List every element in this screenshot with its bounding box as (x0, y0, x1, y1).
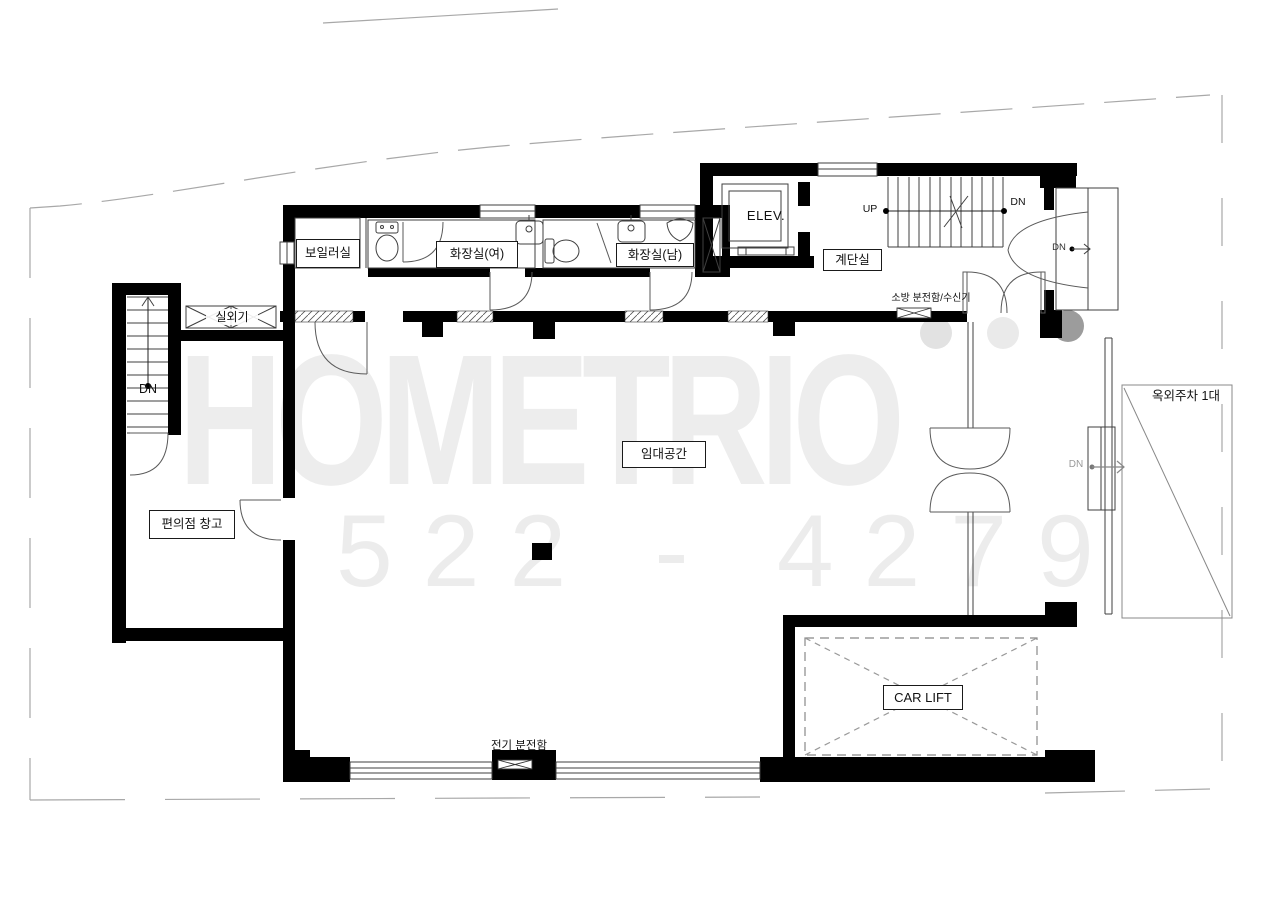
sink-women-icon (516, 221, 543, 244)
doors (130, 212, 1088, 540)
exit-arrow-entrance-icon (1070, 244, 1091, 254)
panels (498, 308, 931, 769)
label-toilet-women: 화장실(여) (436, 241, 518, 268)
label-dn-main-stairs: DN (1006, 196, 1030, 208)
label-rental-space: 임대공간 (622, 441, 706, 468)
label-outdoor-parking: 옥외주차 1대 (1141, 389, 1231, 404)
label-stairwell: 계단실 (823, 249, 882, 271)
label-dn-entrance: DN (1049, 242, 1069, 253)
left-stairs (127, 297, 168, 433)
urinal-icon (667, 219, 693, 241)
label-fire-panel: 소방 분전함/수신기 (879, 293, 983, 305)
label-boiler-room: 보일러실 (296, 239, 360, 268)
label-car-lift: CAR LIFT (883, 685, 963, 710)
toilet-bowl-women-icon (376, 235, 398, 261)
outdoor-parking-outline (1122, 385, 1232, 618)
label-electric-panel: 전기 분전함 (474, 740, 564, 754)
exit-arrow-right-icon (1090, 461, 1125, 473)
label-dn-left-stairs: DN (134, 382, 162, 396)
label-store-warehouse: 편의점 창고 (149, 510, 235, 539)
label-elevator: ELEV. (741, 206, 791, 224)
sink-men-icon (618, 221, 645, 242)
label-outdoor-unit: 실외기 (206, 309, 258, 325)
label-dn-exit-right: DN (1064, 459, 1088, 471)
toilet-bowl-men-icon (553, 240, 579, 262)
label-toilet-men: 화장실(남) (616, 243, 694, 267)
main-stairs (883, 177, 1007, 247)
label-up-main-stairs: UP (858, 203, 882, 215)
site-boundary (30, 9, 1222, 800)
toilet-tank-women-icon (376, 222, 398, 233)
floor-plan-canvas: HOMETRIO 522 - 4279 (0, 0, 1280, 905)
